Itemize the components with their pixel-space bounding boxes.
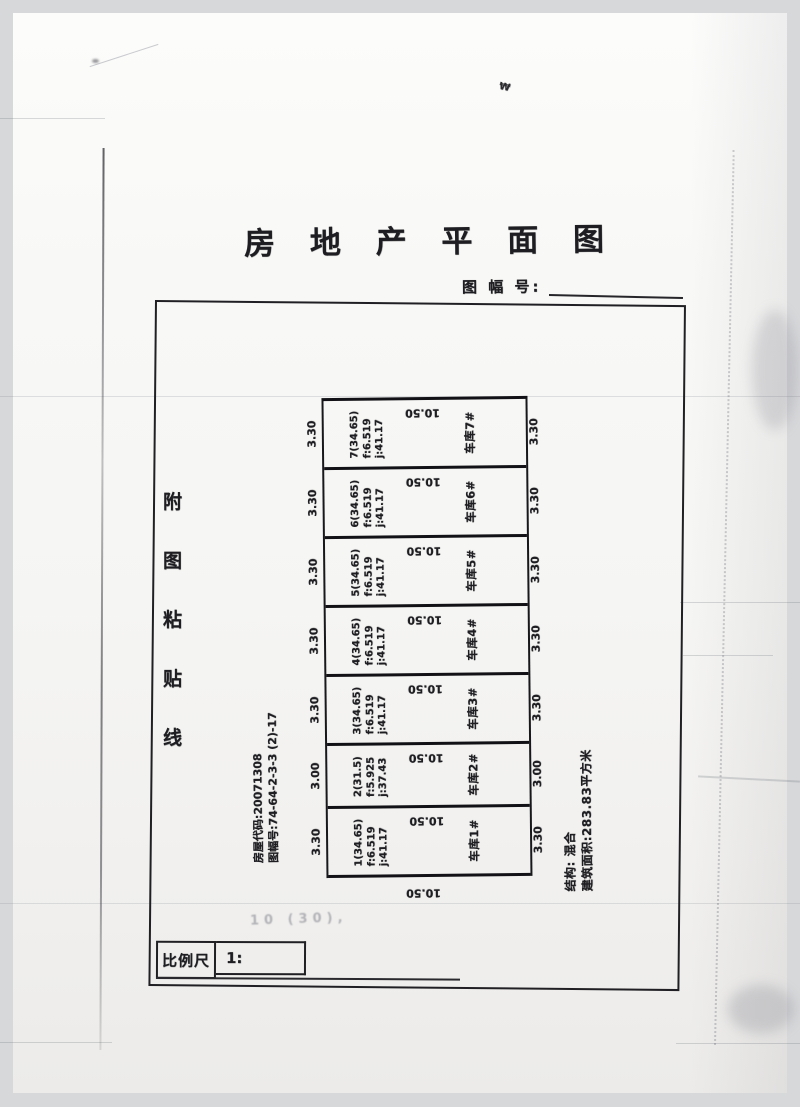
scan-shading <box>690 13 787 1093</box>
page-title: 房 地 产 平 面 图 <box>170 213 691 264</box>
scan-mark: ₩ <box>498 81 511 94</box>
paste-line-char: 线 <box>163 723 182 750</box>
scan-streak <box>676 1043 800 1044</box>
scale-bar-label: 比例尺 <box>156 941 216 979</box>
scan-smudge <box>92 59 99 63</box>
scanned-page: ₩ 房 地 产 平 面 图 图 幅 号: 附图粘贴线 房屋代码:20071308… <box>0 0 800 1107</box>
scan-smudge <box>728 985 794 1033</box>
paste-line-char: 图 <box>163 546 182 573</box>
paste-line-char: 粘 <box>163 605 182 632</box>
scale-bar: 比例尺 1: <box>156 941 306 980</box>
paste-line-text: 附图粘贴线 <box>163 487 182 750</box>
sheet-number-label: 图 幅 号: <box>462 276 542 298</box>
scan-streak <box>0 118 105 119</box>
scan-streak <box>683 655 773 656</box>
paste-line-char: 附 <box>163 487 182 514</box>
scan-streak <box>0 1042 112 1043</box>
drawing-frame <box>148 300 686 991</box>
scan-streak <box>680 602 800 603</box>
scale-bar-value: 1: <box>216 941 306 975</box>
scan-smudge <box>752 310 798 430</box>
paste-line-char: 贴 <box>163 664 182 691</box>
